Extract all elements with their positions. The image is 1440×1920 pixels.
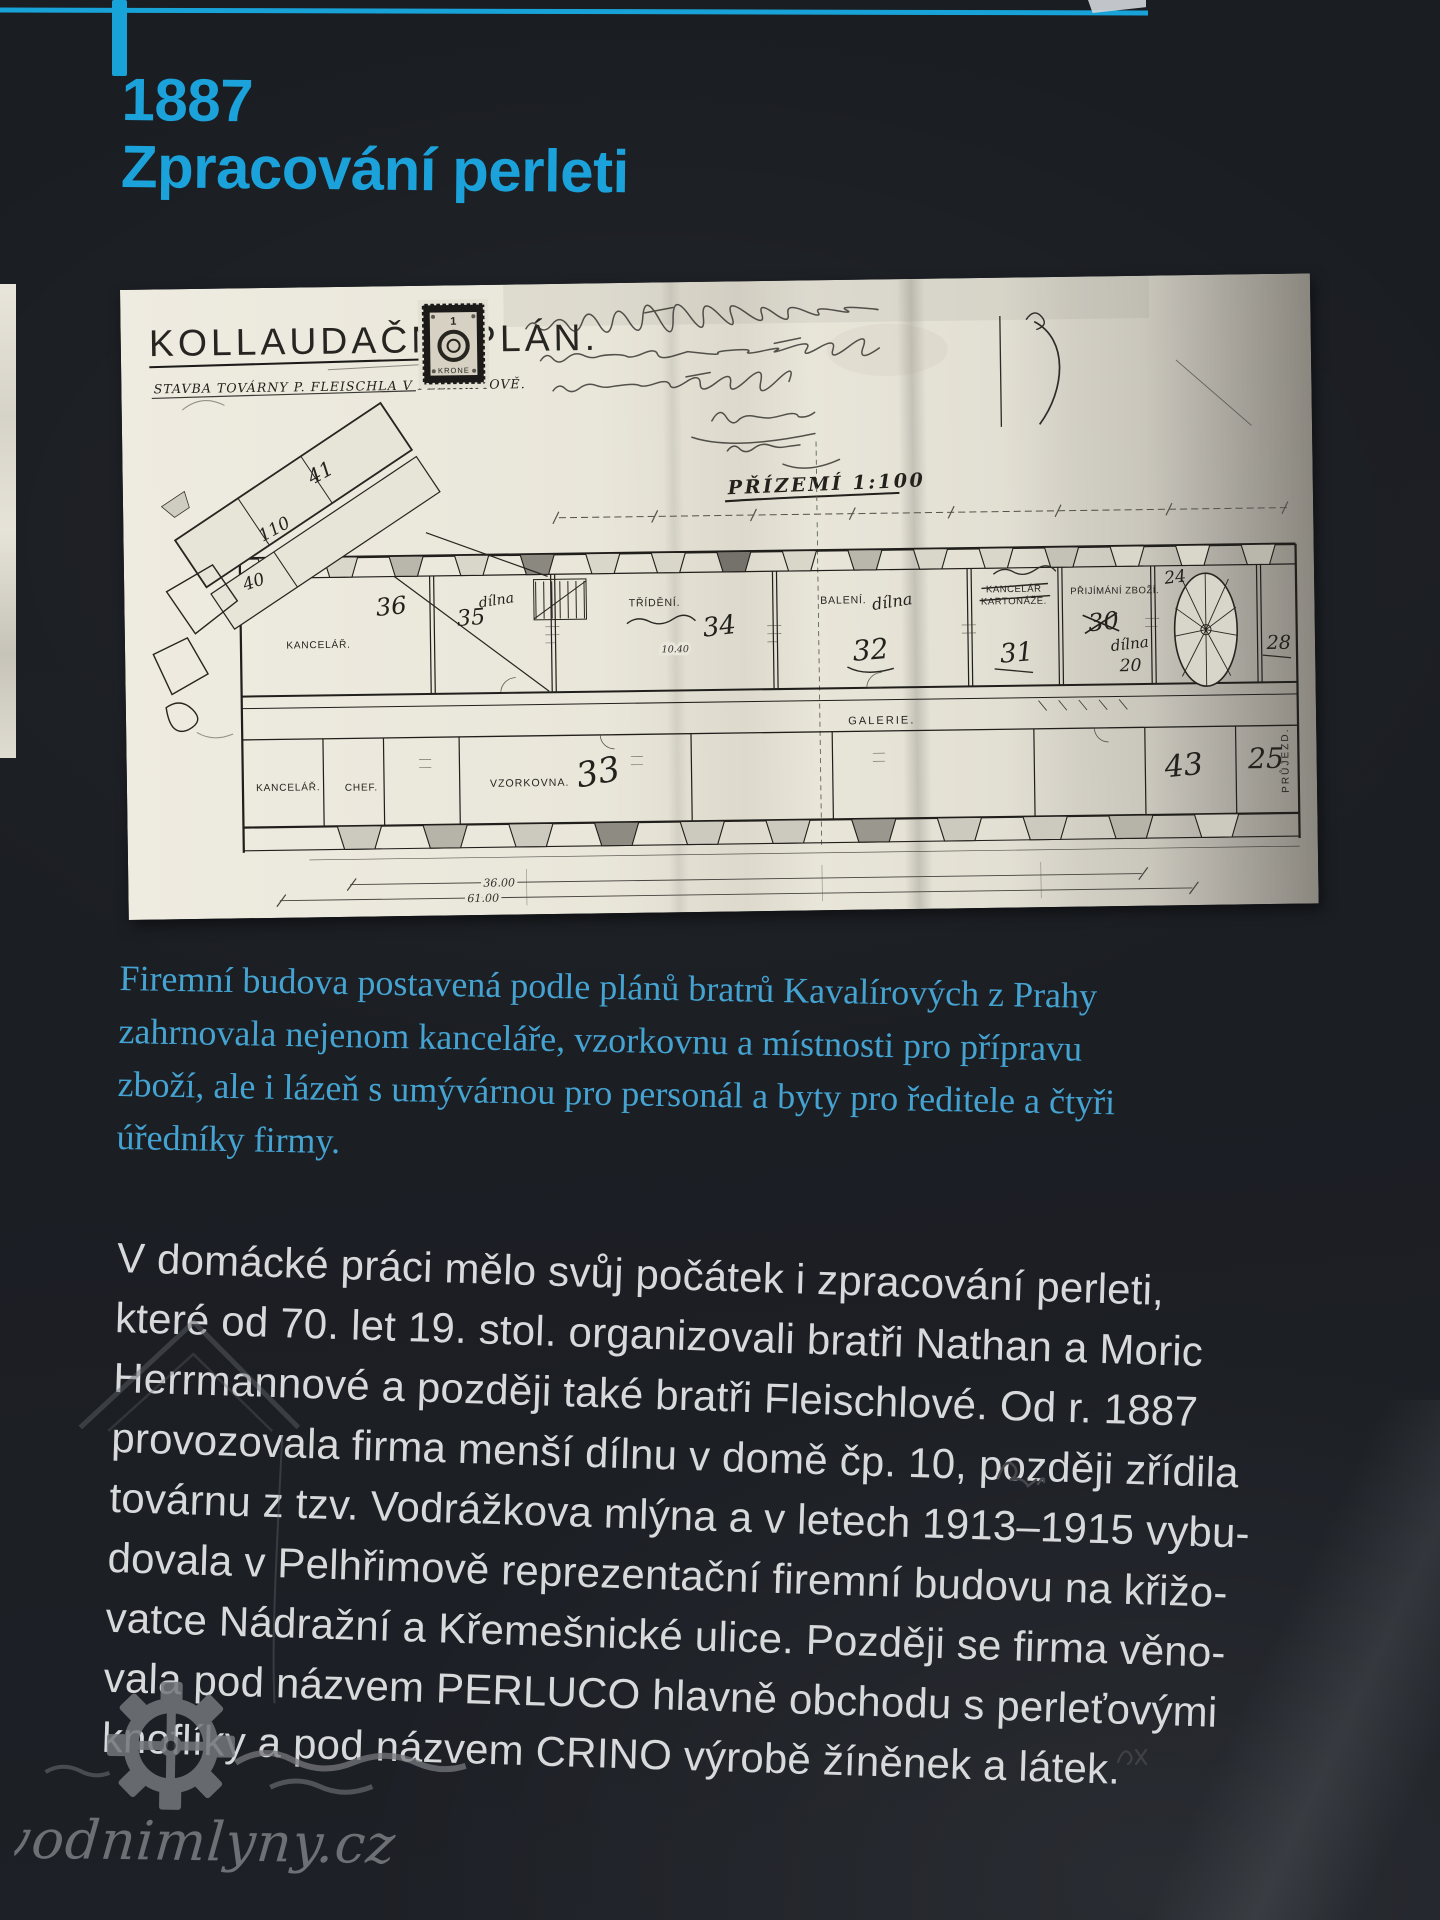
stamp-unit: KRONE <box>438 366 470 375</box>
dim-36-00: 36.00 <box>483 876 515 889</box>
paper-shading <box>503 276 1149 327</box>
pen-mark <box>1112 1736 1152 1772</box>
room-number-36: 36 <box>374 591 407 622</box>
lead-paragraph: Firemní budova postavená podle plánů bra… <box>116 952 1180 1183</box>
dim-10-40: 10.40 <box>662 644 690 655</box>
room-number-20: 20 <box>1119 656 1142 676</box>
pen-scribble <box>992 1444 1046 1492</box>
mill-house-icon <box>77 1321 300 1704</box>
room-number-24: 24 <box>1162 566 1187 589</box>
water-waves-icon <box>45 1750 465 1794</box>
stamp-value: 1 <box>450 316 456 328</box>
room-number-32: 32 <box>851 632 890 668</box>
room-label-vzorkovna: VZORKOVNA. <box>490 777 570 790</box>
room-label-galerie: GALERIE. <box>848 714 915 727</box>
watermark: vodnimlyny.cz <box>14 1292 502 1899</box>
room-label-chef: CHEF. <box>345 782 378 793</box>
room-number-28: 28 <box>1265 631 1291 654</box>
dim-61-00: 61.00 <box>467 892 499 905</box>
floor-plan-drawing: KOLLAUDAČNÍ PLÁN. STAVBA TOVÁRNY P. FLEI… <box>120 273 1319 920</box>
watermark-text: vodnimlyny.cz <box>14 1808 399 1876</box>
heading-title: Zpracování perleti <box>121 134 629 205</box>
section-heading: 1887 Zpracování perleti <box>121 66 630 205</box>
room-number-30-crossed: 30 <box>1083 606 1121 637</box>
timeline-tick <box>112 0 127 76</box>
adjacent-panel-edge <box>0 284 16 758</box>
room-label-baleni: BALENÍ. <box>820 593 866 607</box>
room-number-31: 31 <box>999 637 1035 670</box>
room-label-kancelar-top: KANCELÁŘ. <box>286 638 351 652</box>
floor-plan-photo: KOLLAUDAČNÍ PLÁN. STAVBA TOVÁRNY P. FLEI… <box>120 273 1319 920</box>
revenue-stamp: 1 KRONE <box>418 299 490 389</box>
room-label-kancelar-bottom: KANCELÁŘ. <box>256 780 321 794</box>
stairs-oval <box>1174 573 1238 687</box>
room-number-34: 34 <box>701 610 738 644</box>
room-number-43: 43 <box>1162 747 1205 786</box>
room-number-33: 33 <box>573 749 623 796</box>
room-label-prijimani: PŘIJÍMÁNÍ ZBOŽÍ. <box>1070 585 1159 597</box>
room-label-prujezd: PRŮJEZD. <box>1278 727 1292 793</box>
exhibit-panel-photo: 1887 Zpracování perleti <box>0 0 1440 1920</box>
room-number-25: 25 <box>1247 742 1284 776</box>
room-label-trideni: TŘÍDĚNÍ. <box>629 596 681 610</box>
heading-year: 1887 <box>121 66 630 139</box>
watermark-graphic: vodnimlyny.cz <box>14 1292 502 1899</box>
timeline-line <box>0 7 1148 15</box>
waterwheel-gear-icon <box>106 1681 236 1811</box>
